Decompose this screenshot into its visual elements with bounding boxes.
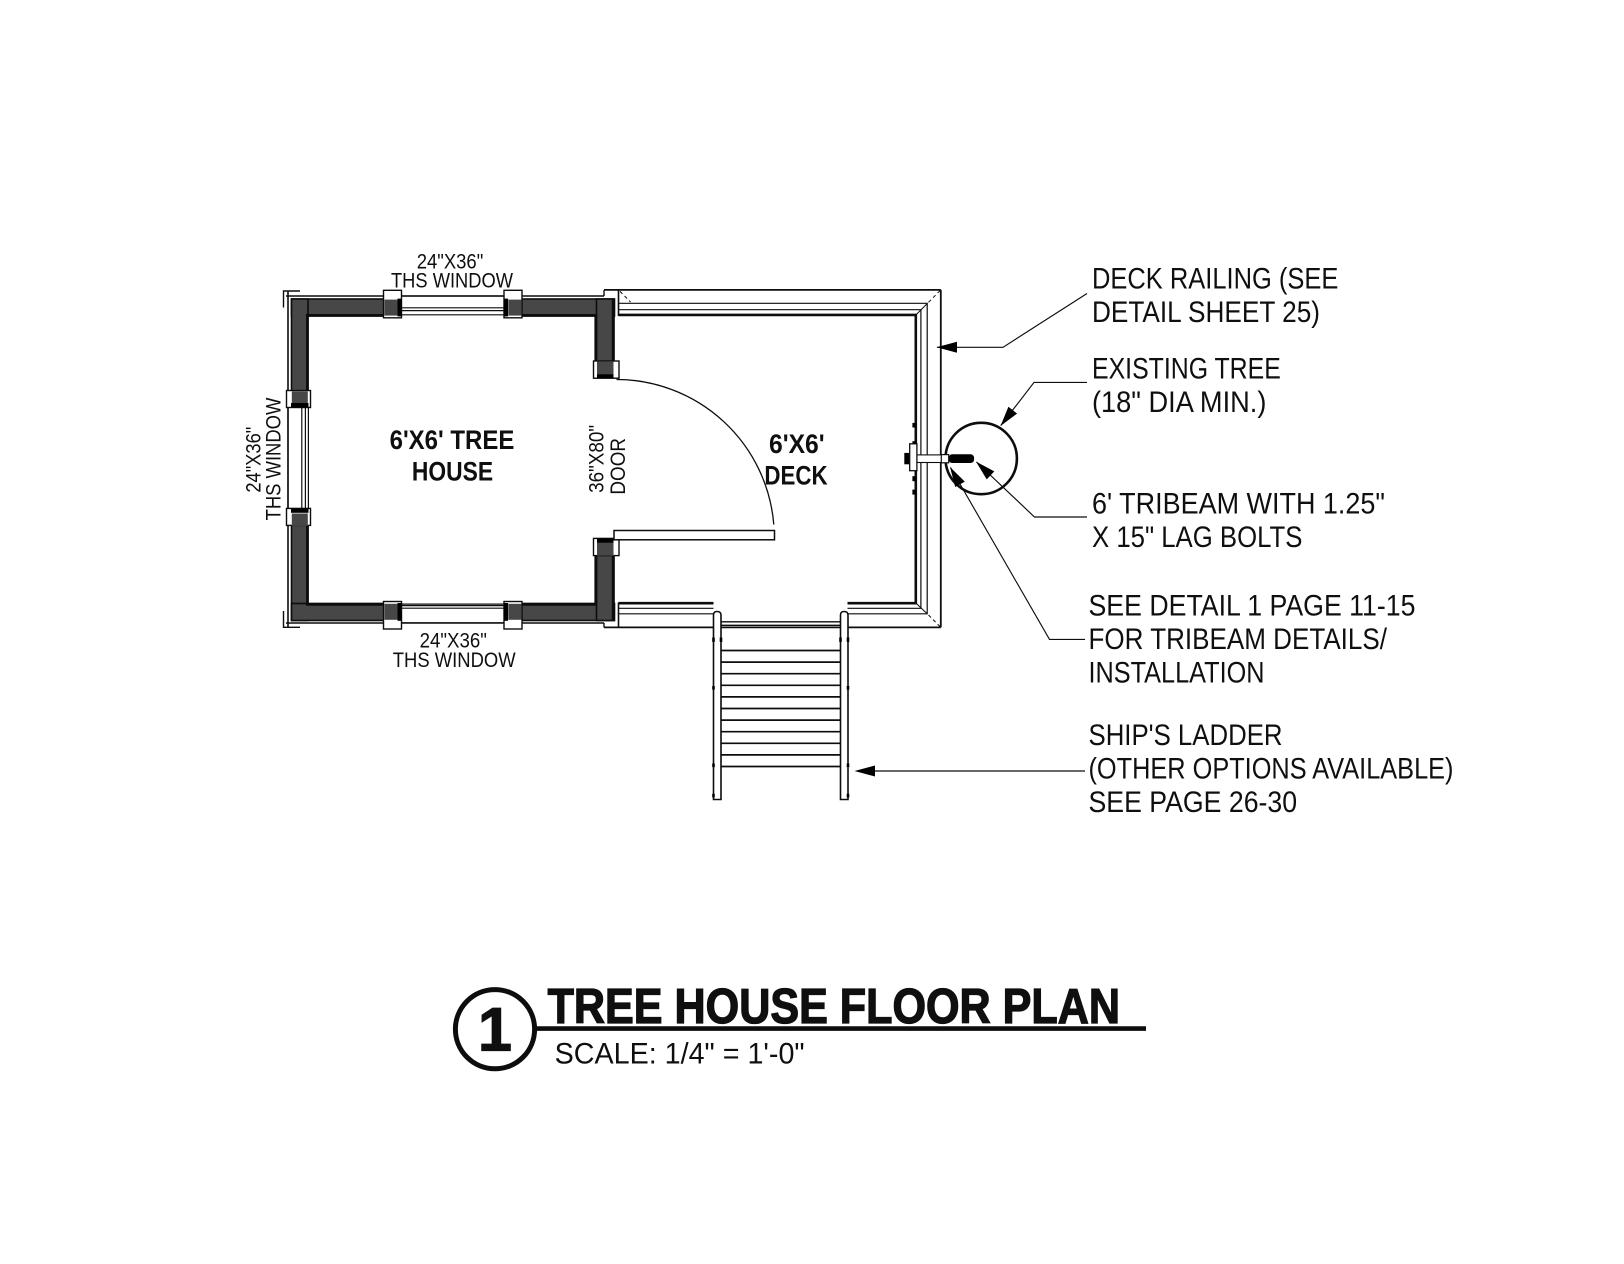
svg-text:X 15" LAG BOLTS: X 15" LAG BOLTS [1092, 521, 1302, 554]
svg-text:DETAIL SHEET 25): DETAIL SHEET 25) [1092, 296, 1320, 329]
svg-text:SCALE: 1/4" = 1'-0": SCALE: 1/4" = 1'-0" [555, 1038, 805, 1071]
svg-text:TREE HOUSE FLOOR PLAN: TREE HOUSE FLOOR PLAN [548, 980, 1120, 1034]
svg-text:DECK RAILING (SEE: DECK RAILING (SEE [1092, 263, 1338, 296]
svg-text:FOR TRIBEAM DETAILS/: FOR TRIBEAM DETAILS/ [1089, 623, 1388, 656]
svg-text:HOUSE: HOUSE [412, 457, 493, 487]
svg-text:SHIP'S LADDER: SHIP'S LADDER [1089, 719, 1283, 752]
svg-text:THS WINDOW: THS WINDOW [393, 648, 516, 672]
svg-text:6'X6': 6'X6' [769, 429, 825, 459]
svg-text:DECK: DECK [764, 460, 828, 490]
svg-text:SEE DETAIL 1 PAGE 11-15: SEE DETAIL 1 PAGE 11-15 [1089, 590, 1416, 623]
svg-text:THS WINDOW: THS WINDOW [262, 397, 286, 520]
svg-text:(OTHER OPTIONS AVAILABLE): (OTHER OPTIONS AVAILABLE) [1089, 753, 1454, 786]
svg-text:6'X6' TREE: 6'X6' TREE [390, 425, 515, 455]
svg-text:SEE PAGE 26-30: SEE PAGE 26-30 [1089, 786, 1298, 819]
svg-text:THS WINDOW: THS WINDOW [391, 269, 514, 293]
svg-text:INSTALLATION: INSTALLATION [1089, 657, 1265, 690]
svg-text:EXISTING TREE: EXISTING TREE [1092, 353, 1281, 386]
svg-text:(18" DIA MIN.): (18" DIA MIN.) [1092, 386, 1266, 419]
svg-text:6' TRIBEAM WITH 1.25": 6' TRIBEAM WITH 1.25" [1092, 488, 1385, 521]
svg-text:1: 1 [478, 996, 512, 1064]
svg-text:DOOR: DOOR [606, 438, 630, 495]
